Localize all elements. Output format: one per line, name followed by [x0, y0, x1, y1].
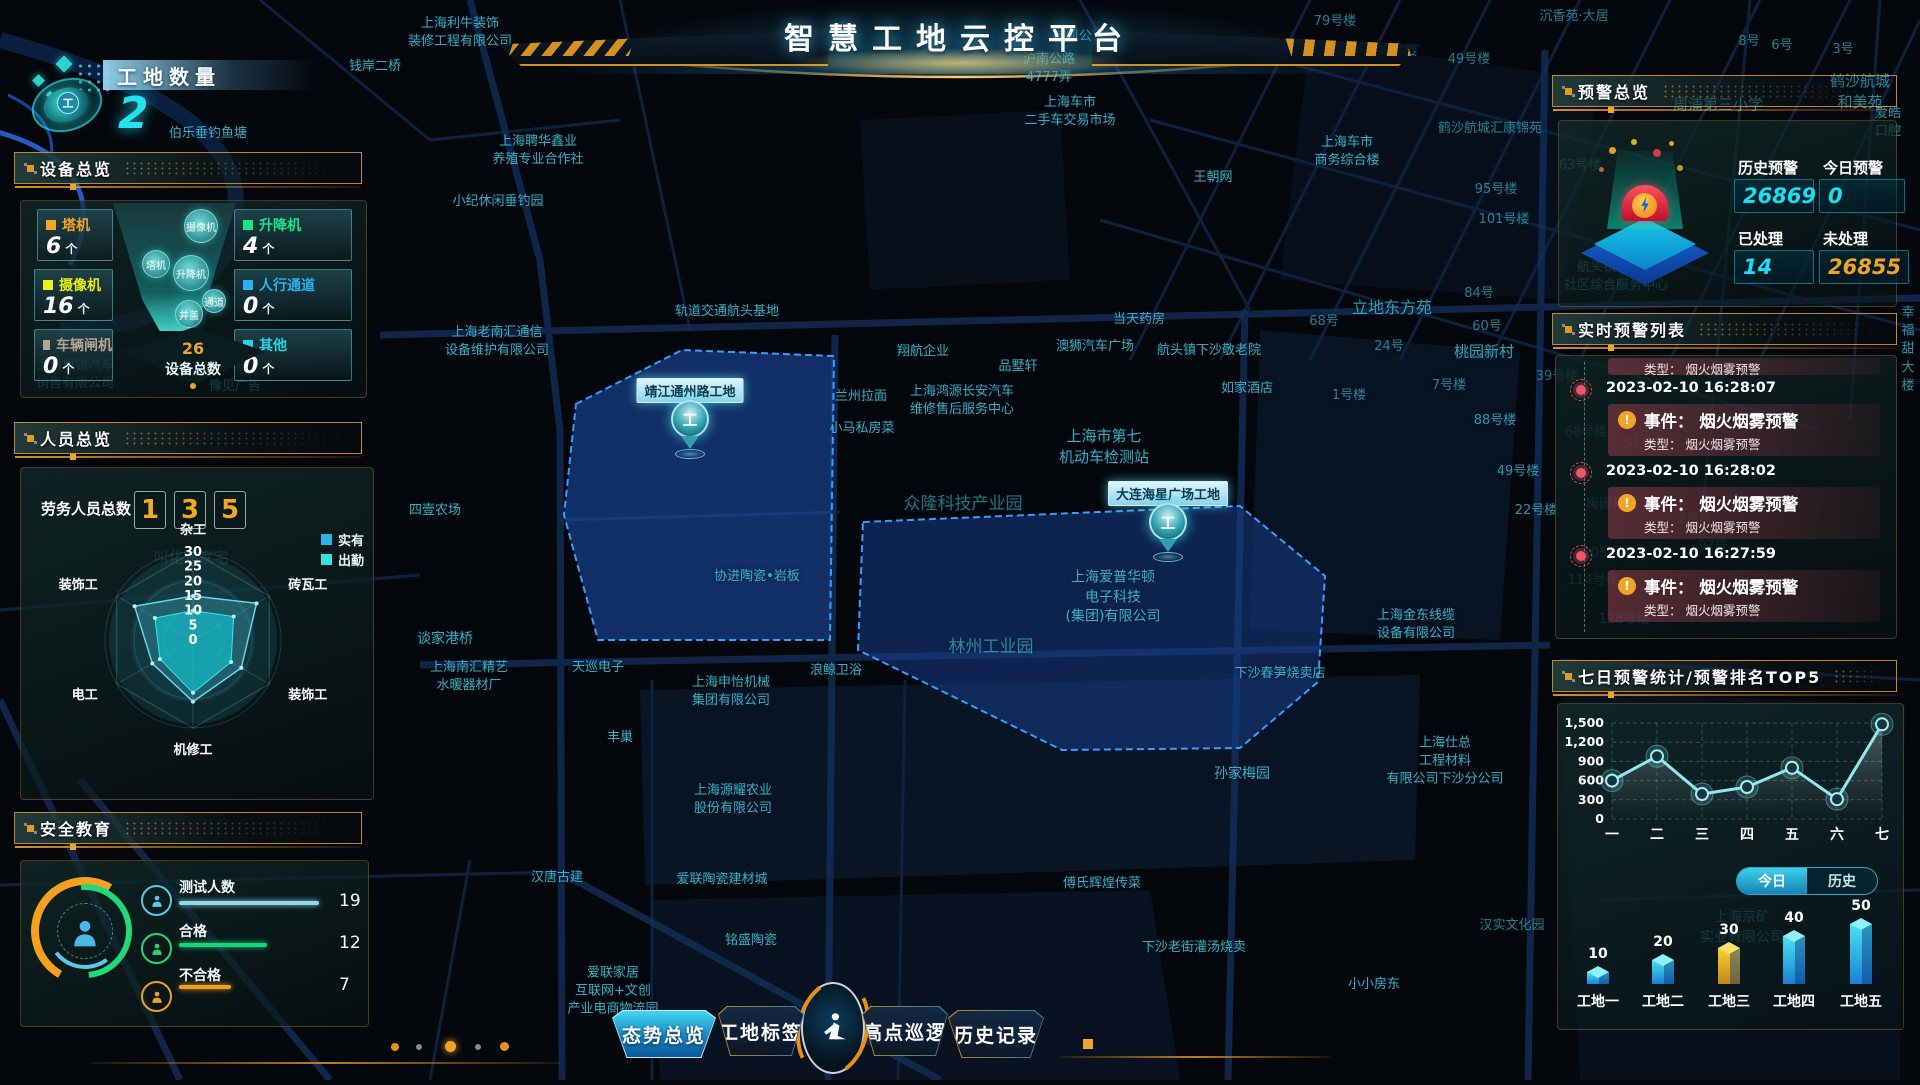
personnel-panel-body: 劳务人员总数 135实有出勤302520151050杂工砖瓦工装饰工机修工电工装…: [20, 467, 374, 800]
rank-bar: [1850, 924, 1872, 984]
alert-event-text: 事件： 烟火烟雾预警: [1644, 408, 1798, 432]
svg-text:七: 七: [1875, 827, 1889, 843]
rank-bar-shade: [1862, 924, 1872, 984]
confetti-dot-icon: [1677, 165, 1683, 171]
rank-bar-shade: [1730, 948, 1740, 984]
funnel-bubble: 塔机: [142, 250, 170, 278]
rank-bar-value: 40: [1784, 910, 1803, 926]
alert-timestamp: 2023-02-10 16:28:07: [1606, 380, 1776, 396]
rank-bar-face: [1850, 924, 1872, 984]
person-icon: [141, 981, 172, 1012]
toggle-today[interactable]: 今日: [1737, 868, 1807, 894]
alert-timestamp: 2023-02-10 16:28:02: [1606, 463, 1776, 479]
color-square-icon: [43, 340, 50, 350]
alarm-bulb-icon: [1632, 193, 1657, 218]
device-count: 0个: [43, 355, 112, 379]
weekly-panel-body: 今日 历史 03006009001,2001,500一二三四五六七10工地一20…: [1557, 703, 1904, 1030]
device-label: 车辆闸机: [56, 335, 112, 355]
svg-text:5: 5: [188, 618, 197, 633]
nav-tab-4[interactable]: 历史记录: [948, 1010, 1044, 1058]
weekly-line-chart: 03006009001,2001,500一二三四五六七: [1562, 713, 1898, 853]
rank-bar-face: [1783, 936, 1805, 984]
alert-list-body: 类型： 烟火烟雾预警2023-02-10 16:28:07!事件： 烟火烟雾预警…: [1555, 355, 1897, 639]
halftone-dots-icon: [1662, 84, 1886, 99]
rank-bar-name: 工地四: [1773, 991, 1815, 1011]
device-cell-top: 人行通道: [243, 275, 351, 295]
alert-item-card[interactable]: !事件： 烟火烟雾预警类型： 烟火烟雾预警: [1608, 487, 1880, 539]
alert-stat-value: 0: [1819, 179, 1905, 213]
radar-chart: 302520151050杂工砖瓦工装饰工机修工电工装饰工: [25, 512, 365, 797]
safety-row-value: 12: [339, 933, 361, 953]
rank-bar-shade: [1795, 936, 1805, 984]
nav-tab-label: 历史记录: [949, 1011, 1043, 1057]
device-unit: 个: [262, 362, 274, 376]
weekly-panel-header: 七日预警统计/预警排名TOP5: [1552, 660, 1897, 692]
confetti-dot-icon: [1653, 149, 1661, 157]
panel-underline: [15, 846, 361, 848]
device-cell-top: 摄像机: [43, 275, 112, 295]
funnel-bubble: 通道: [202, 289, 226, 313]
alarm-3d-icon: [1569, 133, 1719, 298]
site-pin-base-icon: [1153, 552, 1183, 562]
rank-bar: [1587, 972, 1609, 984]
safety-panel-body: 测试人数19合格12不合格7: [20, 860, 369, 1027]
alert-dot-icon: [1576, 551, 1586, 561]
safety-row-bar: [179, 901, 319, 905]
confetti-dot-icon: [1609, 147, 1616, 154]
lightning-icon: [1640, 197, 1650, 213]
rank-bar-name: 工地三: [1708, 991, 1750, 1011]
device-label: 摄像机: [59, 275, 101, 295]
alert-stat-value: 26869: [1734, 179, 1814, 213]
nav-tab-label: 高点巡逻: [863, 1007, 947, 1055]
svg-text:0: 0: [188, 633, 197, 648]
device-panel-title: 设备总览: [40, 156, 112, 180]
svg-text:装饰工: 装饰工: [287, 687, 327, 703]
worker-icon: [817, 1010, 849, 1046]
alert-stat-label: 今日预警: [1823, 157, 1883, 178]
exclamation-icon: !: [1618, 411, 1636, 429]
panel-ornament-icon: [27, 825, 34, 832]
panel-ornament-icon: [1565, 88, 1572, 95]
svg-text:六: 六: [1830, 826, 1844, 843]
alert-list-title: 实时预警列表: [1578, 317, 1686, 341]
svg-text:10: 10: [184, 604, 202, 619]
svg-text:300: 300: [1578, 792, 1604, 807]
toggle-history[interactable]: 历史: [1807, 868, 1877, 894]
halftone-dots-icon: [124, 821, 351, 836]
panel-ornament-icon: [1565, 326, 1572, 333]
halftone-dots-icon: [124, 161, 351, 176]
alert-stat-value: 14: [1734, 250, 1814, 284]
halftone-dots-icon: [1833, 669, 1886, 684]
rank-bar-value: 50: [1851, 898, 1870, 914]
site-pin-tail-icon: [1159, 539, 1177, 552]
svg-text:0: 0: [1595, 811, 1604, 826]
alert-stat-value: 26855: [1819, 250, 1909, 284]
funnel-bubble: 摄像机: [184, 209, 218, 243]
safety-row-bar: [179, 985, 231, 989]
orange-dot-icon: [190, 383, 196, 389]
alert-event-row: !事件： 烟火烟雾预警: [1618, 408, 1880, 432]
timeline-dashed-line: [1584, 362, 1585, 632]
device-count: 16个: [43, 295, 112, 319]
alert-stat-label: 历史预警: [1738, 157, 1798, 178]
exclamation-icon: !: [1618, 494, 1636, 512]
rank-bar: [1783, 936, 1805, 984]
device-unit: 个: [65, 242, 77, 256]
device-unit: 个: [262, 242, 274, 256]
site-pin-tail-icon: [681, 436, 699, 449]
svg-text:装饰工: 装饰工: [58, 577, 98, 593]
svg-text:一: 一: [1605, 827, 1619, 843]
device-label: 塔机: [62, 215, 90, 235]
nav-tab-label: 工地标签: [719, 1007, 803, 1055]
device-unit: 个: [78, 302, 90, 316]
svg-text:1,200: 1,200: [1564, 734, 1604, 749]
alert-dot-icon: [1576, 468, 1586, 478]
confetti-dot-icon: [1599, 167, 1604, 172]
device-cell-top: 车辆闸机: [43, 335, 112, 355]
device-total-value: 26: [182, 339, 204, 358]
person-icon: [69, 917, 101, 949]
alert-timestamp: 2023-02-10 16:27:59: [1606, 546, 1776, 562]
safety-gauge: [31, 877, 139, 985]
today-history-toggle[interactable]: 今日 历史: [1736, 867, 1878, 895]
safety-panel-header: 安全教育: [14, 812, 362, 844]
dashboard: 上海利牛装饰 装修工程有限公司钱岸二桥伯乐垂钓鱼塘上海聘华鑫业 养殖专业合作社小…: [0, 0, 1920, 1080]
panel-underline: [1553, 347, 1896, 349]
site-pin-icon[interactable]: 工: [671, 400, 709, 438]
personnel-panel-title: 人员总览: [40, 426, 112, 450]
alert-event-text: 事件： 烟火烟雾预警: [1644, 574, 1798, 598]
panel-underline: [1553, 694, 1896, 696]
svg-text:900: 900: [1578, 753, 1604, 768]
device-cell-top: 升降机: [243, 215, 351, 235]
alert-event-text: 事件： 烟火烟雾预警: [1644, 491, 1798, 515]
confetti-dot-icon: [1669, 141, 1674, 146]
rank-bar-name: 工地一: [1577, 991, 1619, 1011]
alert-list-header: 实时预警列表: [1552, 313, 1897, 345]
color-square-icon: [46, 220, 56, 230]
site-count-icon: 工: [31, 79, 103, 131]
site-count-title-band: 工地数量: [103, 60, 317, 90]
weekly-panel-title: 七日预警统计/预警排名TOP5: [1578, 664, 1821, 688]
nav-tab-3[interactable]: 高点巡逻: [862, 1006, 948, 1056]
rank-bar: [1718, 948, 1740, 984]
panel-underline: [15, 456, 361, 458]
device-count: 0个: [243, 295, 351, 319]
confetti-dot-icon: [1631, 139, 1637, 145]
svg-text:杂工: 杂工: [180, 522, 206, 538]
svg-text:机修工: 机修工: [173, 742, 212, 758]
svg-text:电工: 电工: [72, 687, 98, 703]
device-panel-header: 设备总览: [14, 152, 362, 184]
alert-type-text: 类型： 烟火烟雾预警: [1644, 359, 1880, 375]
site-count-label: 工地数量: [103, 61, 221, 90]
device-label: 人行通道: [259, 275, 315, 295]
panel-underline: [1553, 109, 1896, 111]
svg-text:四: 四: [1740, 827, 1754, 843]
safety-panel-title: 安全教育: [40, 816, 112, 840]
svg-text:1,500: 1,500: [1564, 715, 1604, 730]
nav-tab-1[interactable]: 态势总览: [612, 1010, 716, 1058]
safety-row-label: 合格: [179, 921, 207, 941]
device-count: 0个: [243, 355, 351, 379]
color-square-icon: [43, 280, 53, 290]
alert-overview-header: 预警总览: [1552, 75, 1897, 107]
svg-text:20: 20: [184, 574, 202, 589]
device-count: 6个: [46, 235, 112, 259]
rank-bar-name: 工地二: [1642, 991, 1684, 1011]
nav-tab-label: 态势总览: [613, 1011, 715, 1057]
safety-row-label: 测试人数: [179, 877, 235, 897]
panel-underline: [15, 186, 361, 188]
svg-text:25: 25: [184, 560, 202, 575]
site-pin-base-icon: [675, 449, 705, 459]
person-icon: [141, 933, 172, 964]
svg-text:五: 五: [1785, 827, 1799, 843]
alert-stat-label: 已处理: [1738, 228, 1783, 249]
halftone-dots-icon: [1698, 322, 1886, 337]
device-cell: 人行通道0个: [234, 269, 352, 321]
panel-ornament-icon: [27, 435, 34, 442]
alert-item-card[interactable]: !事件： 烟火烟雾预警类型： 烟火烟雾预警: [1608, 404, 1880, 456]
pin-icon: 工: [57, 92, 79, 114]
device-cell: 车辆闸机0个: [34, 329, 113, 381]
safety-row-value: 19: [339, 891, 361, 911]
device-label: 升降机: [259, 215, 301, 235]
funnel-bubble: 井盖: [175, 300, 203, 328]
rank-bar-value: 20: [1653, 934, 1672, 950]
alert-type-text: 类型： 烟火烟雾预警: [1644, 600, 1880, 619]
halftone-dots-icon: [124, 431, 351, 446]
device-cell: 升降机4个: [234, 209, 352, 261]
color-square-icon: [243, 280, 253, 290]
rank-bar-value: 10: [1588, 946, 1607, 962]
alert-item-partial[interactable]: 类型： 烟火烟雾预警: [1608, 358, 1880, 375]
alert-dot-icon: [1576, 385, 1586, 395]
device-panel-body: 塔机6个升降机4个摄像机16个人行通道0个车辆闸机0个其他0个摄像机塔机升降机通…: [20, 200, 367, 398]
nav-center-badge[interactable]: [801, 982, 865, 1074]
panel-ornament-icon: [1565, 673, 1572, 680]
alert-type-text: 类型： 烟火烟雾预警: [1644, 517, 1880, 536]
rank-bar-value: 30: [1719, 922, 1738, 938]
device-cell: 塔机6个: [37, 209, 113, 261]
exclamation-icon: !: [1618, 577, 1636, 595]
device-total-label: 设备总数: [165, 359, 221, 379]
nav-tab-2[interactable]: 工地标签: [718, 1006, 804, 1056]
device-unit: 个: [62, 362, 74, 376]
personnel-panel-header: 人员总览: [14, 422, 362, 454]
alert-overview-body: 历史预警26869今日预警0已处理14未处理26855: [1558, 120, 1897, 307]
device-unit: 个: [262, 302, 274, 316]
person-icon: [141, 885, 172, 916]
svg-text:三: 三: [1695, 827, 1709, 843]
alert-stat-label: 未处理: [1823, 228, 1868, 249]
safety-row-label: 不合格: [179, 965, 221, 985]
svg-text:砖瓦工: 砖瓦工: [288, 577, 327, 593]
alert-item-card[interactable]: !事件： 烟火烟雾预警类型： 烟火烟雾预警: [1608, 570, 1880, 622]
funnel-bubble: 升降机: [173, 255, 209, 291]
svg-text:30: 30: [184, 545, 202, 560]
svg-text:600: 600: [1578, 773, 1604, 788]
svg-text:15: 15: [184, 589, 202, 604]
alert-event-row: !事件： 烟火烟雾预警: [1618, 491, 1880, 515]
rank-bar-name: 工地五: [1840, 991, 1882, 1011]
color-square-icon: [243, 220, 253, 230]
alert-event-row: !事件： 烟火烟雾预警: [1618, 574, 1880, 598]
panel-ornament-icon: [27, 165, 34, 172]
device-count: 4个: [243, 235, 351, 259]
device-cell-top: 塔机: [46, 215, 112, 235]
device-cell: 摄像机16个: [34, 269, 113, 321]
alert-type-text: 类型： 烟火烟雾预警: [1644, 434, 1880, 453]
alert-overview-title: 预警总览: [1578, 79, 1650, 103]
site-count-value: 2: [118, 88, 149, 139]
safety-row-bar: [179, 943, 267, 947]
svg-text:二: 二: [1650, 827, 1664, 843]
site-pin-icon[interactable]: 工: [1149, 503, 1187, 541]
safety-row-value: 7: [339, 975, 350, 995]
rank-bar: [1652, 960, 1674, 984]
